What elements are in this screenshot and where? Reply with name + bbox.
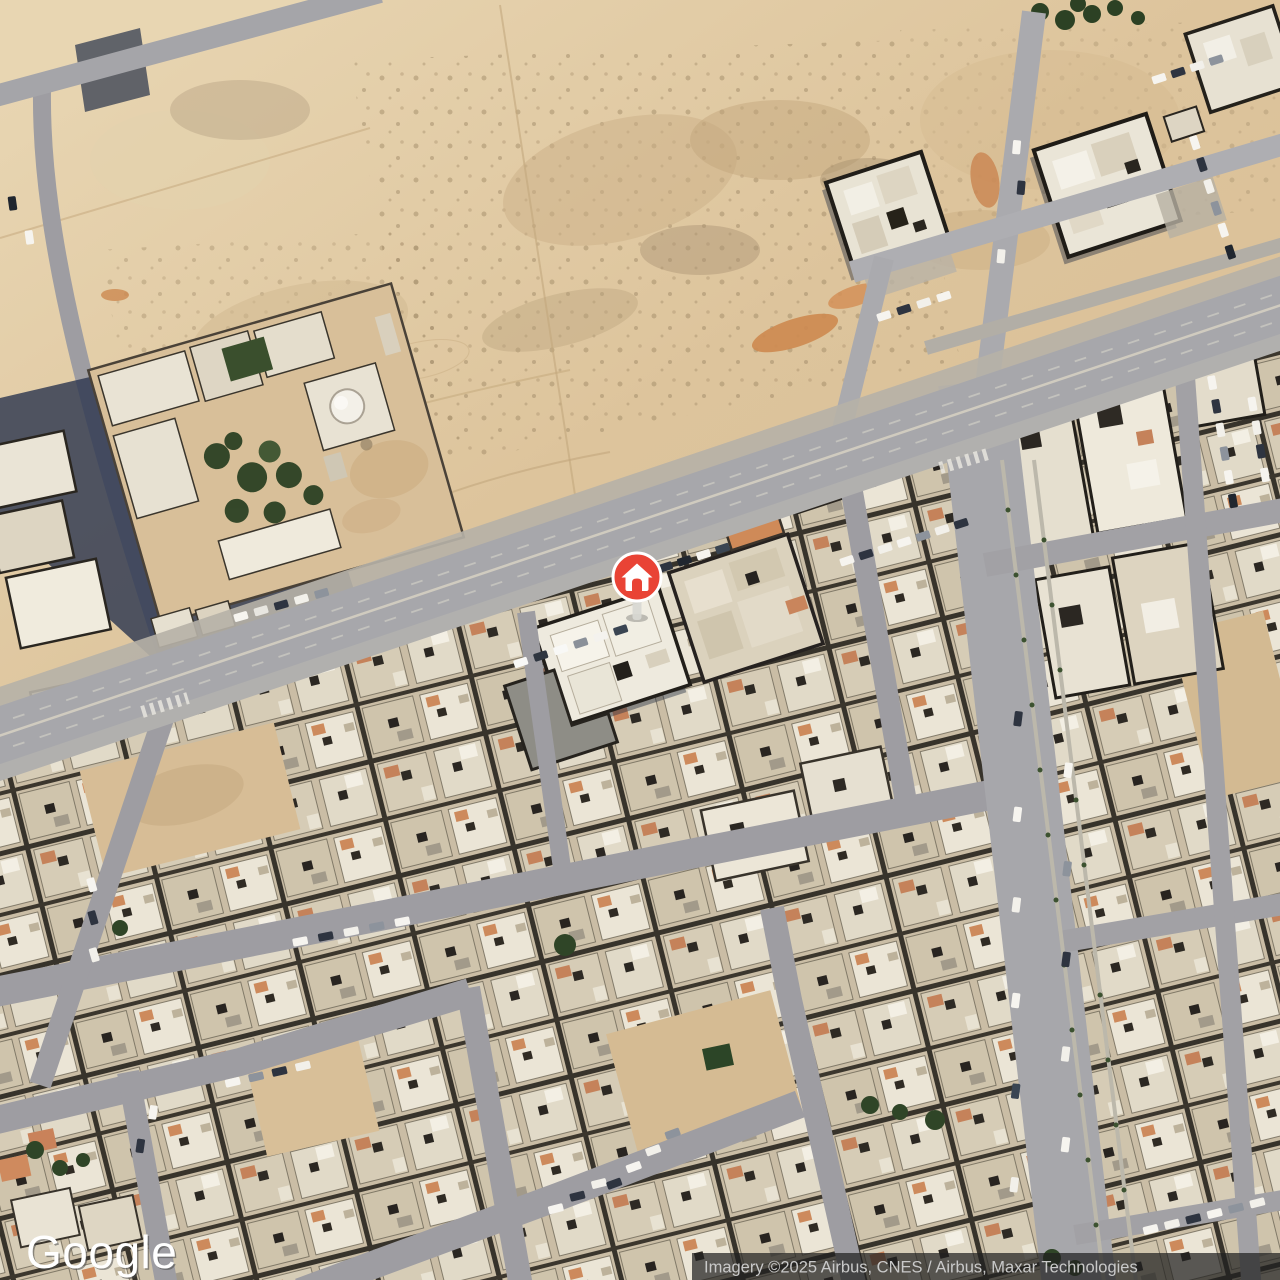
imagery-attribution: Imagery ©2025 Airbus, CNES / Airbus, Max… (692, 1253, 1280, 1280)
google-logo-text: Google (26, 1226, 177, 1278)
satellite-map-viewport[interactable]: Google Google Imagery ©2025 Airbus, CNES… (0, 0, 1280, 1280)
google-logo[interactable]: Google Google (26, 1226, 179, 1280)
satellite-map-canvas[interactable]: Google Google Imagery ©2025 Airbus, CNES… (0, 0, 1280, 1280)
attribution-text: Imagery ©2025 Airbus, CNES / Airbus, Max… (704, 1259, 1138, 1277)
